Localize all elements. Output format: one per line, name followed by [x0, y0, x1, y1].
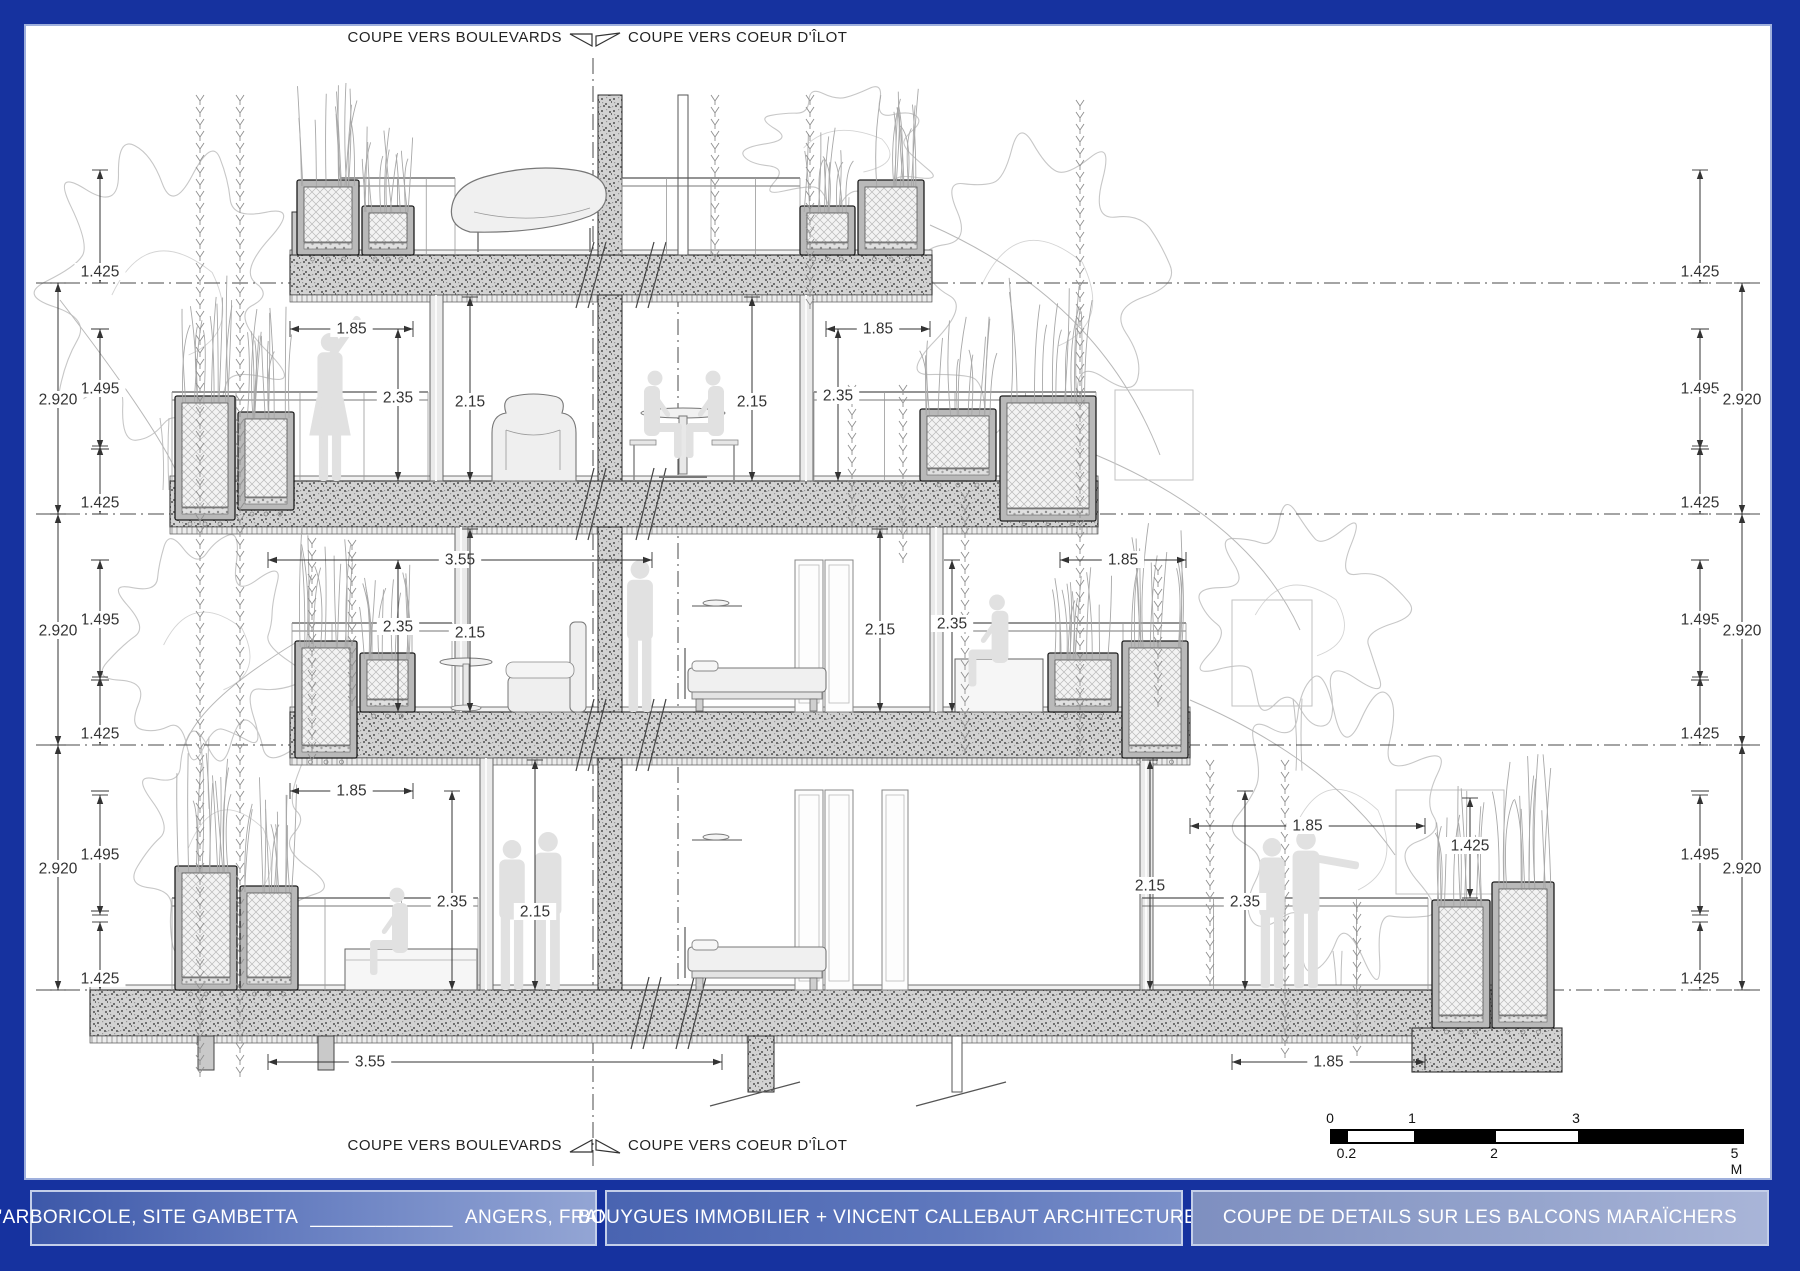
scale-segment	[1332, 1131, 1348, 1142]
cut-label-top-left: COUPE VERS BOULEVARDS	[250, 29, 562, 46]
scale-bar-segments	[1330, 1129, 1744, 1144]
cut-label-bottom-left: COUPE VERS BOULEVARDS	[250, 1137, 562, 1154]
project-name: L'ARBORICOLE, SITE GAMBETTA	[0, 1207, 298, 1229]
scale-label: 0	[1326, 1110, 1334, 1126]
sheet: { "frame": {"border_color": "#16329f", "…	[0, 0, 1800, 1271]
scale-label: 2	[1490, 1145, 1498, 1161]
scale-label: 1	[1408, 1110, 1416, 1126]
cut-label-bottom-right: COUPE VERS COEUR D'ÎLOT	[628, 1137, 847, 1154]
title-panel-team: BOUYGUES IMMOBILIER + VINCENT CALLEBAUT …	[605, 1190, 1183, 1246]
project-separator: _____________	[310, 1207, 453, 1229]
scale-segment	[1348, 1131, 1414, 1142]
scale-label: 5 M	[1731, 1145, 1743, 1177]
title-panel-drawing: COUPE DE DETAILS SUR LES BALCONS MARAÏCH…	[1191, 1190, 1769, 1246]
title-panel-project: L'ARBORICOLE, SITE GAMBETTA ____________…	[30, 1190, 597, 1246]
scale-label: 3	[1572, 1110, 1580, 1126]
scale-segment	[1496, 1131, 1578, 1142]
cut-label-top-right: COUPE VERS COEUR D'ÎLOT	[628, 29, 847, 46]
scale-segment	[1414, 1131, 1496, 1142]
scale-bar: 0130.225 M	[1330, 1114, 1742, 1160]
title-bar: L'ARBORICOLE, SITE GAMBETTA ____________…	[0, 1190, 1800, 1248]
drawing-area	[24, 24, 1772, 1180]
scale-segment	[1578, 1131, 1742, 1142]
scale-label: 0.2	[1337, 1145, 1356, 1161]
